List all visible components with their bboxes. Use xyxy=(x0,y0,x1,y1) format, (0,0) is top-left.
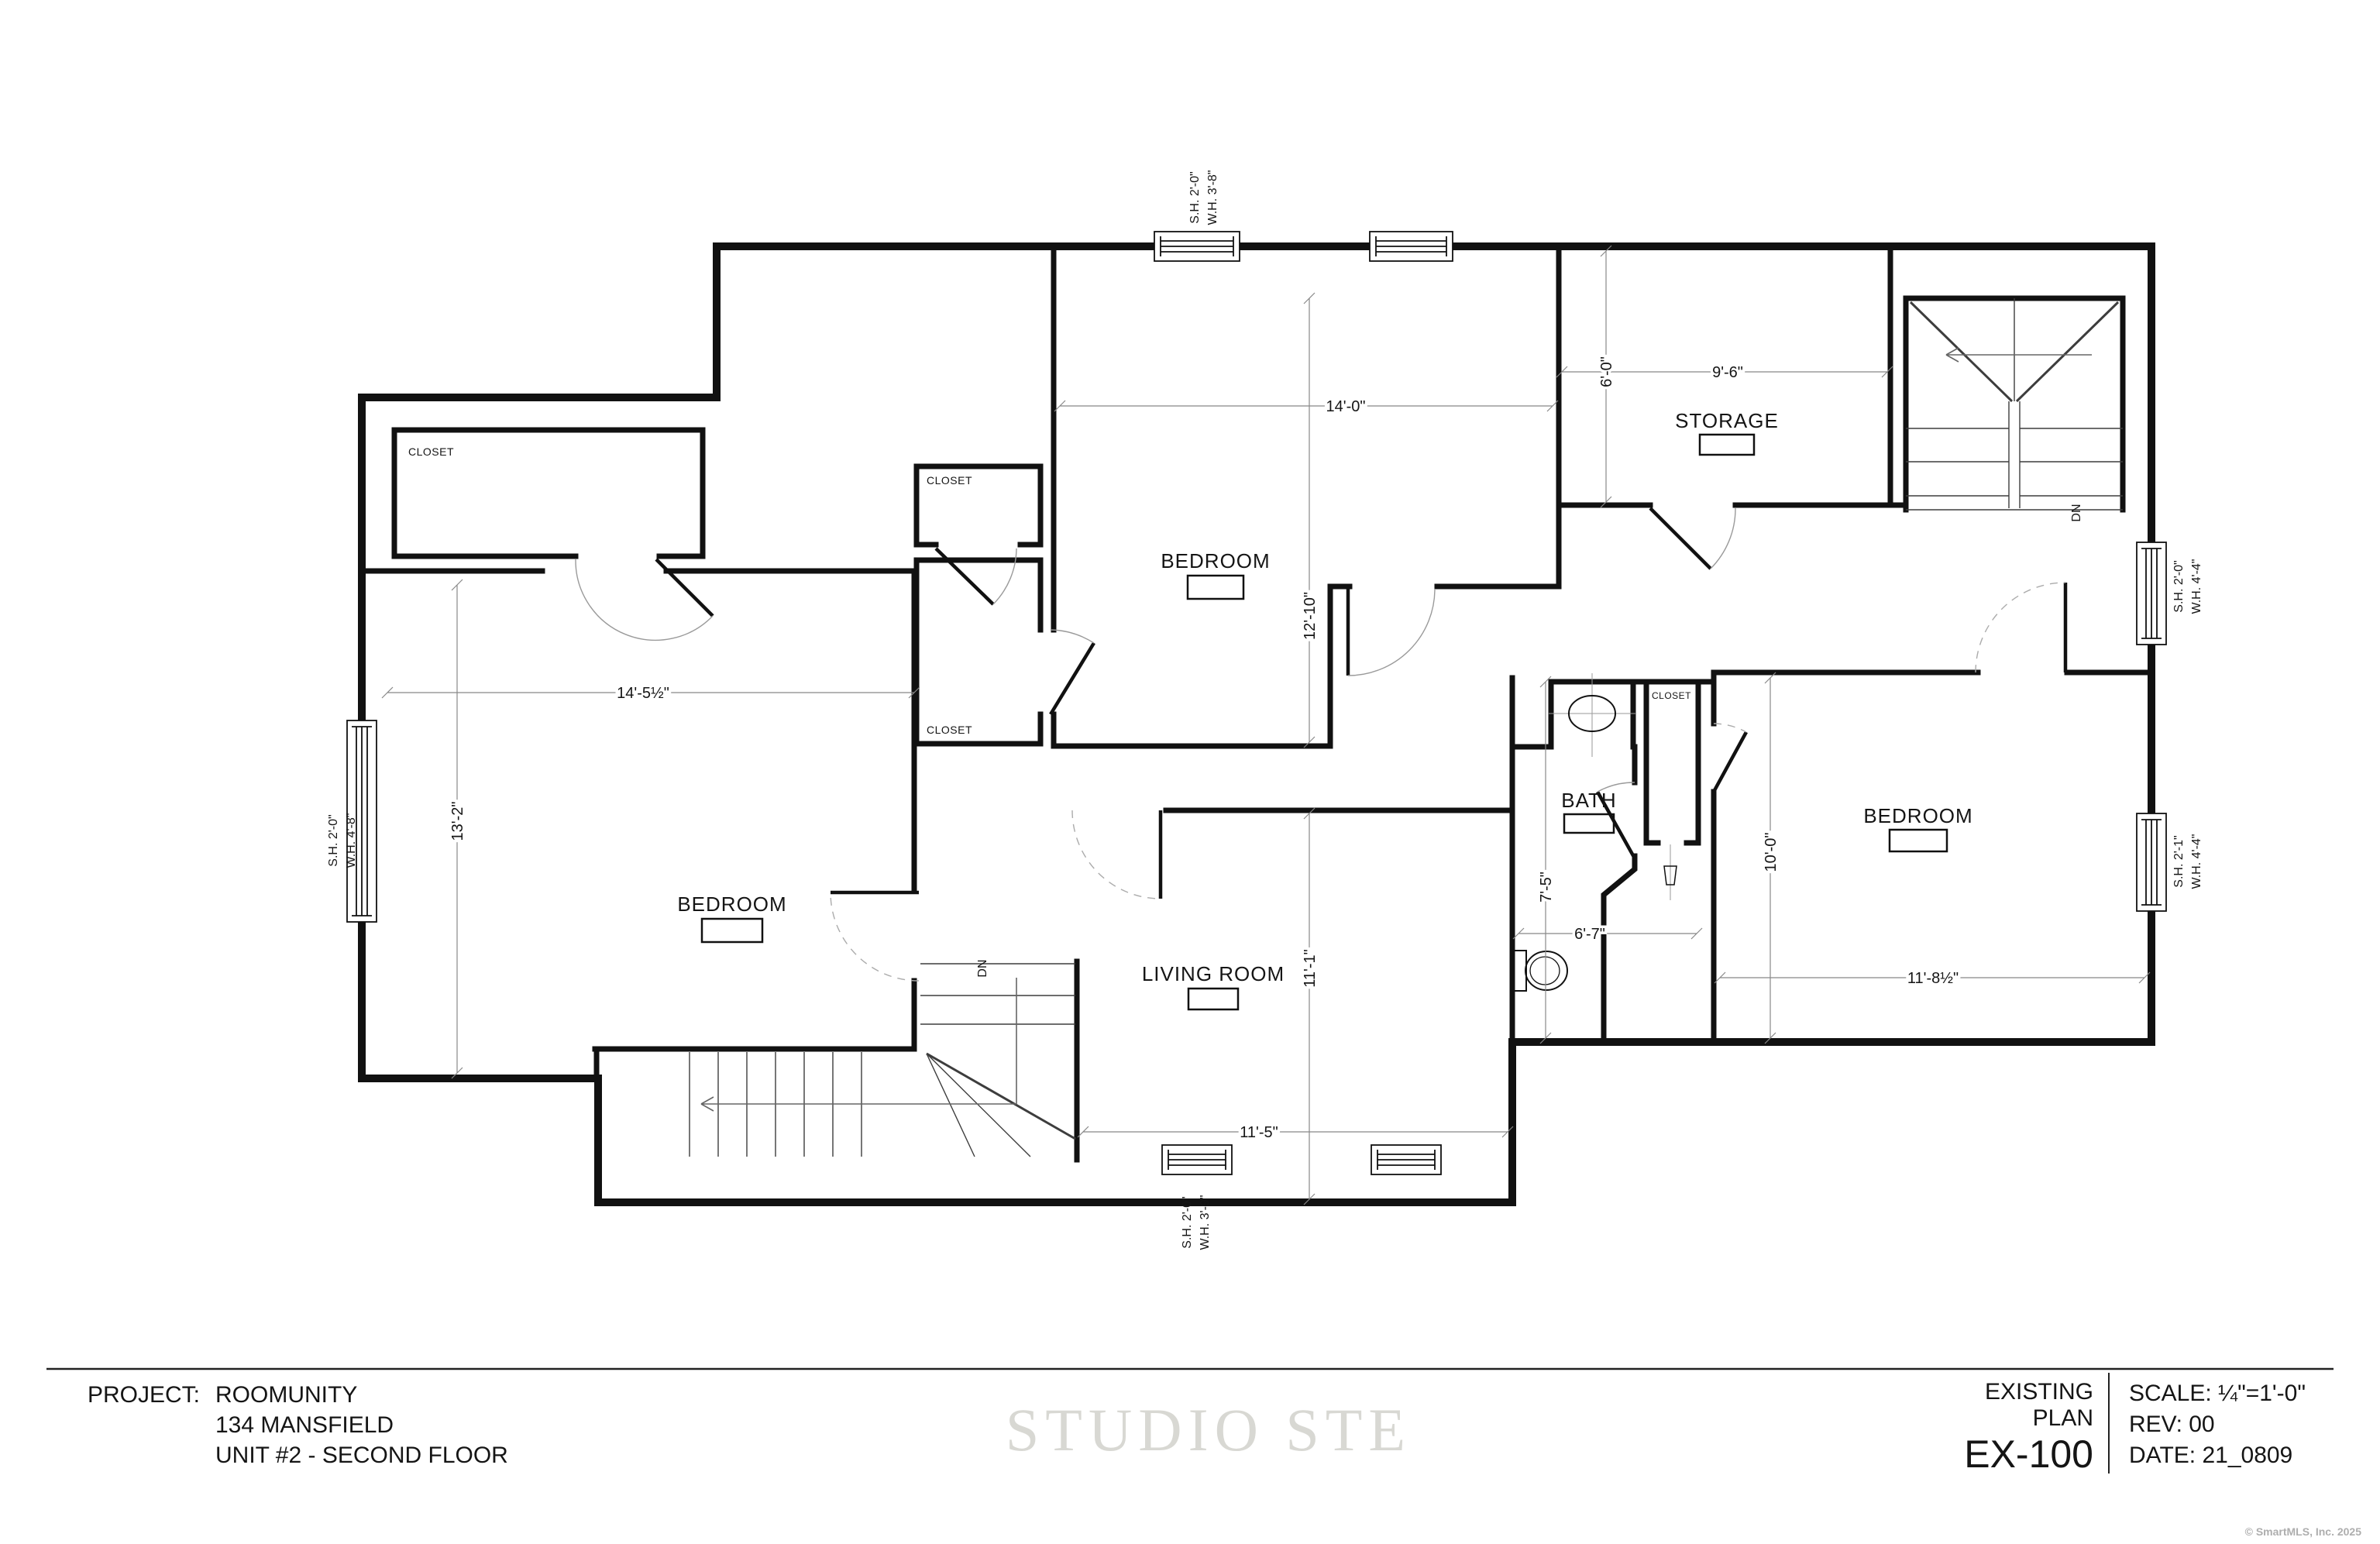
room-labels xyxy=(702,435,1947,1009)
window-right-upper xyxy=(2137,542,2166,645)
project-label: PROJECT: xyxy=(88,1382,200,1408)
dim-bedroom-middle-width: 14'-0" xyxy=(1326,398,1366,415)
shower-head xyxy=(1664,844,1677,900)
room-tag xyxy=(1700,435,1754,455)
door-swing-arcs-dashed xyxy=(831,583,2065,981)
dim-living-room-depth: 11'-1" xyxy=(1302,949,1319,987)
dim-bedroom-right-width: 11'-8½" xyxy=(1907,970,1959,987)
toilet xyxy=(1514,951,1567,991)
exterior-walls xyxy=(362,246,2151,1202)
window-top-b xyxy=(1370,232,1453,261)
sink xyxy=(1549,673,1635,757)
window-bottom-label-1: S.H. 2'-0" xyxy=(1181,1196,1194,1248)
scale-value: SCALE: ¼"=1'-0" xyxy=(2129,1381,2306,1406)
room-tag xyxy=(702,919,762,942)
window-right-lower-label-1: S.H. 2'-1" xyxy=(2172,835,2186,887)
dim-bedroom-left-depth: 13'-2" xyxy=(449,802,466,841)
dimension-labels: 14'-5½" 13'-2" 14'-0" 12'-10" 9'-6" 6'-0… xyxy=(449,356,1959,1141)
project-address: 134 MANSFIELD xyxy=(215,1412,394,1438)
stair-direction-arrow xyxy=(701,978,1016,1111)
plan-name-line1: EXISTING xyxy=(1985,1379,2093,1405)
dimensions xyxy=(382,246,2150,1205)
window-right-upper-label-1: S.H. 2'-0" xyxy=(2172,560,2186,612)
room-tag xyxy=(1188,989,1238,1009)
closet-label-middle-upper: CLOSET xyxy=(927,474,972,487)
project-unit: UNIT #2 - SECOND FLOOR xyxy=(215,1443,508,1468)
sheet-number: EX-100 xyxy=(1964,1432,2093,1476)
bedroom-middle-label: BEDROOM xyxy=(1161,549,1270,573)
room-tag xyxy=(1890,830,1947,851)
bedroom-right-label: BEDROOM xyxy=(1863,804,1972,827)
studio-watermark: STUDIO STE xyxy=(1006,1396,1412,1463)
dim-storage-width: 9'-6" xyxy=(1712,364,1743,381)
window-top-a xyxy=(1154,232,1240,261)
floor-plan: 14'-5½" 13'-2" 14'-0" 12'-10" 9'-6" 6'-0… xyxy=(327,170,2203,1250)
window-bottom-label-2: W.H. 3'-9" xyxy=(1199,1195,1212,1250)
stair-top-right xyxy=(1906,298,2123,510)
storage-label: STORAGE xyxy=(1675,409,1779,432)
watermark: STUDIO STE xyxy=(1006,1396,1412,1463)
room-tag xyxy=(1564,814,1614,833)
window-left-label-2: W.H. 4'-8" xyxy=(345,813,358,868)
living-room-label: LIVING ROOM xyxy=(1142,962,1285,985)
room-tag xyxy=(1188,576,1243,599)
window-bottom-a xyxy=(1162,1145,1232,1174)
plan-name-line2: PLAN xyxy=(2033,1405,2093,1431)
window-top-label-1: S.H. 2'-0" xyxy=(1188,171,1202,223)
window-right-lower xyxy=(2137,813,2166,911)
window-labels: S.H. 2'-0" W.H. 3'-8" S.H. 2'-0" W.H. 4'… xyxy=(327,170,2203,1250)
dim-bedroom-right-depth: 10'-0" xyxy=(1763,833,1780,872)
bedroom-left-label: BEDROOM xyxy=(677,892,786,916)
drawing-sheet: 14'-5½" 13'-2" 14'-0" 12'-10" 9'-6" 6'-0… xyxy=(0,0,2380,1544)
dim-storage-depth: 6'-0" xyxy=(1598,356,1615,387)
stair-dn-label-top: DN xyxy=(2070,504,2083,521)
stair-dn-label-bottom: DN xyxy=(976,959,989,977)
dim-bedroom-left-width: 14'-5½" xyxy=(617,685,669,702)
date-value: DATE: 21_0809 xyxy=(2129,1443,2292,1468)
stair-bottom xyxy=(690,964,1075,1157)
revision-value: REV: 00 xyxy=(2129,1412,2215,1437)
dim-living-room-width: 11'-5" xyxy=(1240,1124,1278,1141)
dim-bath-depth: 7'-5" xyxy=(1538,872,1555,903)
window-right-lower-label-2: W.H. 4'-4" xyxy=(2190,834,2203,889)
window-top-label-2: W.H. 3'-8" xyxy=(1206,170,1219,225)
bath-label: BATH xyxy=(1561,789,1616,812)
windows xyxy=(347,232,2166,1174)
door-leaves xyxy=(656,508,2065,899)
window-left-label-1: S.H. 2'-0" xyxy=(327,814,340,866)
window-bottom-b xyxy=(1371,1145,1441,1174)
dim-bath-width: 6'-7" xyxy=(1574,926,1605,943)
interior-walls xyxy=(362,246,2151,1160)
closet-label-top-left: CLOSET xyxy=(408,445,454,458)
closet-label-middle-lower: CLOSET xyxy=(927,724,972,736)
window-right-upper-label-2: W.H. 4'-4" xyxy=(2190,559,2203,614)
closet-label-bath: CLOSET xyxy=(1652,690,1691,701)
copyright-notice: © SmartMLS, Inc. 2025 xyxy=(2245,1525,2362,1538)
dim-bedroom-middle-depth: 12'-10" xyxy=(1302,592,1319,640)
project-name: ROOMUNITY xyxy=(215,1382,357,1408)
